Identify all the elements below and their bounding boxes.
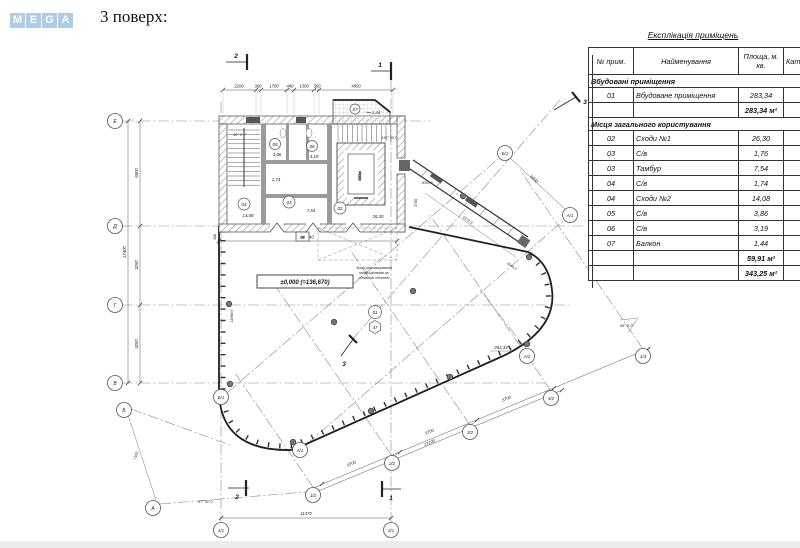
cell-num: 01 [589,88,634,103]
cell-num: 07 [589,236,634,251]
page: 2200 300 1700 440 1300 300 4900 6900 525… [0,0,800,548]
dim-top-2: 300 [255,84,263,89]
balcony [333,100,390,124]
cell-num: 04 [589,191,634,206]
axis-a-2: А/2 [523,354,531,359]
logo-letter-g: G [42,13,57,28]
building-outline [219,226,552,450]
dim-left-3: 5250 [134,339,139,349]
subtotal-row: 59,91 м² [589,251,800,266]
cell-num [589,251,634,266]
col-header-num: № прим. [589,48,634,75]
col-header-name: Найменування [634,48,739,75]
grand-total-row: 343,25 м² [589,266,800,281]
room-04: 04 [241,202,247,207]
dim-top-3: 1700 [269,84,279,89]
explication-table: Експлікація приміщень № прим. Найменуван… [588,30,798,281]
area-main: 283,34 [493,345,508,350]
cell-name [634,251,739,266]
elevator-capacity: 630кг [358,171,362,181]
cell-name: С/в [634,221,739,236]
cell-cat [784,176,800,191]
cell-area: 283,34 [739,88,784,103]
cell-area: 1,76 [739,146,784,161]
marker-47: 47 [372,325,378,330]
cell-area: 3,19 [739,221,784,236]
cell-area: 14,08 [739,191,784,206]
logo-letter-e: E [26,13,41,28]
section-2-top-label: 2 [233,53,238,60]
cell-num: 03 [589,146,634,161]
table-row: 03 Тамбур 7,54 [589,161,800,176]
walkway-wing [399,160,530,248]
area-02: 26,30 [372,214,385,219]
axis-d: Д [112,224,117,230]
dim-wing: 6900 [529,174,540,184]
table-double-border [592,55,593,288]
room-05: 05 [272,142,278,147]
area-04: 14,08 [243,213,255,218]
logo-letter-m: M [10,13,25,28]
section-1-top-label: 1 [378,62,382,69]
cell-area: 7,54 [739,161,784,176]
cell-cat [784,131,800,146]
subtotal-row: 283,34 м² [589,103,800,118]
zone-note-line2: кондиціонерів за [359,271,388,275]
dim-top-4: 440 [287,84,295,89]
section-label: Вбудовані приміщення [589,75,800,88]
room-08-label: 08 [301,236,305,240]
table-row: 04 С/в 1,74 [589,176,800,191]
table-row: 01 Вбудоване приміщення 283,34 [589,88,800,103]
axis-a: А [150,506,155,512]
table-title: Експлікація приміщень [588,30,798,40]
mega-logo: M E G A [10,13,73,28]
cell-num: 03 [589,161,634,176]
cell-name: С/в [634,206,739,221]
section-1-bottom-label: 1 [389,495,393,502]
dim-left-total: 17400 [122,246,127,258]
axis-2-2: 2/2 [388,461,396,466]
room-06: 06 [309,144,315,149]
cell-cat [784,206,800,221]
cell-cat [784,191,800,206]
area-06: 3,19 [310,154,319,159]
cell-num: 02 [589,131,634,146]
dim-top-6: 300 [314,84,322,89]
axis-1-2: 1/2 [310,493,317,498]
axis-4-2: 4/2 [548,396,555,401]
subtotal-value: 59,91 м² [739,251,784,266]
cell-name: Тамбур [634,161,739,176]
table-row: 06 С/в 3,19 [589,221,800,236]
cell-cat [784,236,800,251]
dim-ba: 7100 [133,451,139,460]
cell-cat [784,266,800,281]
section-3-right-label: 3 [583,99,587,106]
axis-1-1: 1/1 [218,528,225,533]
cell-name: Вбудоване приміщення [634,88,739,103]
cell-num [589,103,634,118]
cell-area: 26,30 [739,131,784,146]
zone-note-line1: Зона розташування [356,266,392,270]
section-3-center-label: 3 [342,361,346,368]
dimension-lines [126,88,650,520]
conditioner-zone [318,228,397,264]
axis-a-1b: А/1 [296,448,304,453]
dim-diag-1: 5700 [346,459,357,468]
room-03: 03 [286,200,292,205]
axis-a-1: А/1 [566,213,574,218]
axis-2-1: 2/1 [387,528,395,533]
cell-name [634,103,739,118]
table-header-row: № прим. Найменування Площа, м. кв. Кат. [589,48,800,75]
axis-b-1: Б/1 [502,151,509,156]
dim-top-5: 1300 [299,84,309,89]
conditioner-zone-note: Зона розташування кондиціонерів за зйомн… [356,266,392,280]
pilaster-08: 08 [296,232,309,241]
dim-diag-total: 17100 [423,438,436,447]
cell-area: 3,86 [739,206,784,221]
angle-90: 90° 0' 0" [233,133,247,137]
room-07: 07 [352,107,358,112]
table-row: 04 Сходи №2 14,08 [589,191,800,206]
bottom-strip [0,541,800,548]
dim-diag-2: 5700 [424,427,435,436]
explication-grid: № прим. Найменування Площа, м. кв. Кат. … [588,47,800,281]
dim-bottom: 11370 [300,511,312,516]
axis-1-3: 1/3 [640,354,647,359]
grand-total-value: 343,25 м² [739,266,784,281]
section-2-bottom: 2 [228,480,249,501]
dim-small-300: 300 [213,234,217,240]
level-mark: ±0,000 (=136,670) [257,275,353,288]
room-01: 01 [372,310,378,315]
section-2-top: 2 [226,53,248,70]
zone-note-line3: зйомною стелею [358,276,390,280]
area-05: 3,86 [273,152,282,157]
table-row: 05 С/в 3,86 [589,206,800,221]
cell-name: Сходи №1 [634,131,739,146]
subtotal-value: 283,34 м² [739,103,784,118]
logo-letter-a: A [58,13,73,28]
area-03b: 1,74 [272,177,281,182]
cell-area: 1,44 [739,236,784,251]
cell-name: С/в [634,146,739,161]
col-header-area: Площа, м. кв. [739,48,784,75]
section-row: Місця загального користування [589,118,800,131]
cell-cat [784,103,800,118]
cell-cat [784,146,800,161]
cell-cat [784,88,800,103]
cell-num [589,266,634,281]
section-label: Місця загального користування [589,118,800,131]
section-2-bottom-label: 2 [234,494,239,501]
section-row: Вбудовані приміщення [589,75,800,88]
dim-diag-3: 5700 [501,394,512,403]
table-row: 03 С/в 1,76 [589,146,800,161]
dim-left-2: 5250 [134,260,139,270]
dim-wing-h: 3700 [414,199,418,207]
table-row: 02 Сходи №1 26,30 [589,131,800,146]
area-03: 7,54 [307,208,316,213]
cell-num: 04 [589,176,634,191]
axis-3-2: 3/2 [467,430,474,435]
elevator-shaft: 630кг [337,143,385,205]
col-header-cat: Кат. [784,48,800,75]
level-mark-text: ±0,000 (=136,670) [280,280,329,286]
cell-num: 05 [589,206,634,221]
cell-area: 1,74 [739,176,784,191]
cell-name: Балкон [634,236,739,251]
axis-b-1b: Б/1 [218,395,225,400]
table-row: 07 Балкон 1,44 [589,236,800,251]
cell-cat [784,161,800,176]
dim-top-1: 2200 [233,84,244,89]
page-title: 3 поверх: [100,7,168,27]
section-3-center: 3 [341,335,357,368]
angle-67: 67° 30' 0" [198,500,214,504]
cell-name [634,266,739,281]
cell-num: 06 [589,221,634,236]
section-1-bottom: 1 [382,481,401,502]
room-02: 02 [337,206,343,211]
cell-name: Сходи №2 [634,191,739,206]
section-1-top: 1 [371,62,392,80]
dim-top-7: 4900 [351,84,361,89]
cell-name: С/в [634,176,739,191]
dim-left-wall: 11968,9 [230,310,234,323]
area-07: 1,44 [372,110,381,115]
cell-cat [784,221,800,236]
angle-66: 66° 0' 0" [620,324,634,328]
dim-left-1: 6900 [134,168,139,178]
cell-cat [784,251,800,266]
